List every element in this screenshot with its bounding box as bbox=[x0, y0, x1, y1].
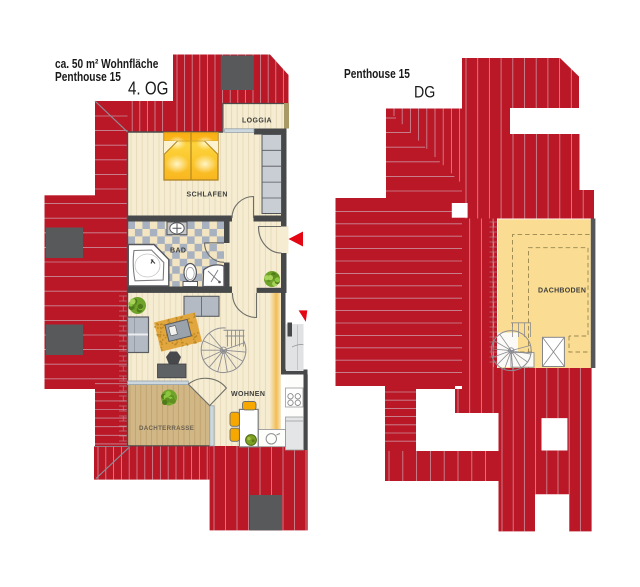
svg-text:DACHTERRASSE: DACHTERRASSE bbox=[139, 425, 194, 432]
svg-text:Penthouse 15: Penthouse 15 bbox=[344, 67, 410, 81]
svg-text:SCHLAFEN: SCHLAFEN bbox=[187, 192, 228, 199]
svg-text:4. OG: 4. OG bbox=[128, 78, 168, 99]
svg-text:Penthouse 15: Penthouse 15 bbox=[55, 70, 121, 84]
svg-text:BAD: BAD bbox=[170, 248, 186, 255]
svg-text:LOGGIA: LOGGIA bbox=[242, 118, 272, 125]
svg-text:DACHBODEN: DACHBODEN bbox=[538, 288, 586, 295]
svg-text:DG: DG bbox=[414, 84, 435, 102]
svg-text:WOHNEN: WOHNEN bbox=[231, 391, 265, 398]
